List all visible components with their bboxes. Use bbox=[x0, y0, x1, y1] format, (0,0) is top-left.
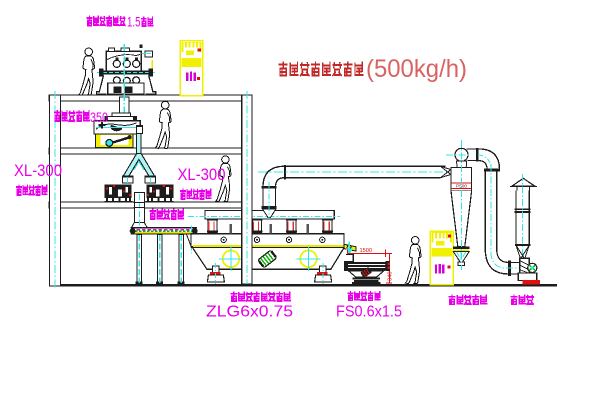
svg-text:XL-300: XL-300 bbox=[14, 162, 62, 180]
svg-text:(500kg/h): (500kg/h) bbox=[366, 55, 467, 83]
svg-text:XL-300: XL-300 bbox=[178, 166, 226, 184]
svg-text:1.5: 1.5 bbox=[127, 14, 141, 30]
svg-text:ZLG6x0.75: ZLG6x0.75 bbox=[206, 304, 293, 321]
svg-text:1500: 1500 bbox=[360, 248, 373, 254]
svg-text:FS0.6x1.5: FS0.6x1.5 bbox=[336, 304, 402, 321]
svg-text:340: 340 bbox=[388, 272, 394, 282]
svg-text:350: 350 bbox=[90, 110, 108, 125]
